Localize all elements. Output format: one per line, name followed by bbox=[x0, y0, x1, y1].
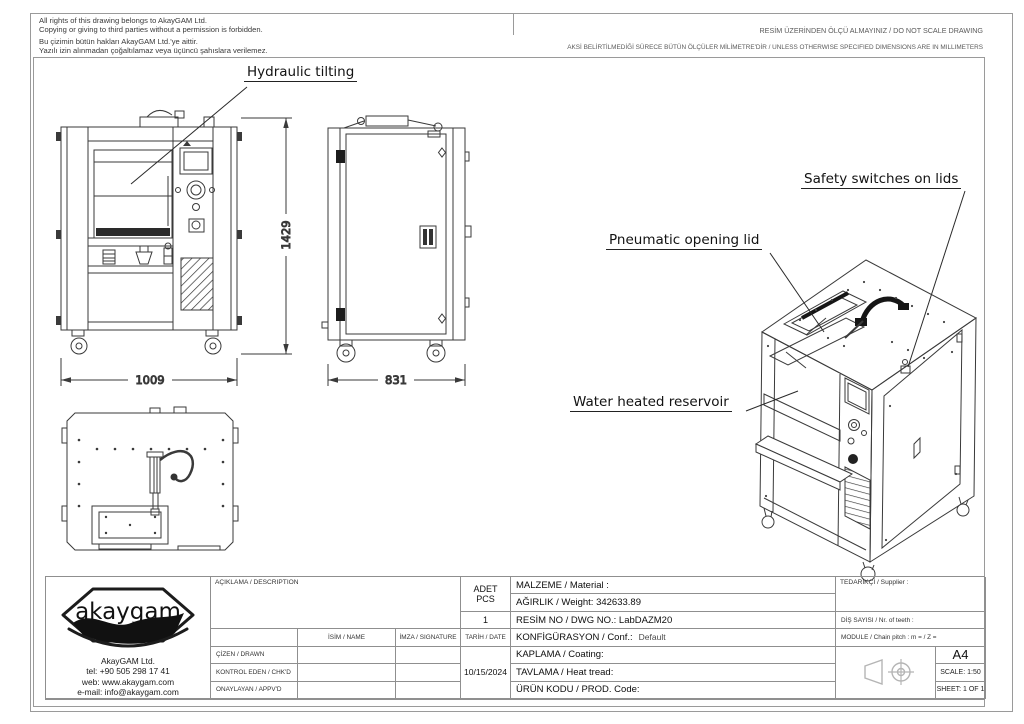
approved-label-cell: ONAYLAYAN / APPV'D bbox=[211, 682, 298, 699]
first-angle-projection-icon bbox=[855, 654, 917, 690]
side-view bbox=[322, 116, 471, 362]
dim-height-text: 1429 bbox=[279, 220, 293, 249]
logo-cell: akaygam AkayGAM Ltd. tel: +90 505 298 17… bbox=[46, 577, 211, 699]
projection-cell bbox=[836, 647, 936, 699]
module-cell: MODULE / Chain pitch : m = / Z = bbox=[836, 629, 986, 646]
heat-treat-cell: TAVLAMA / Heat tread: bbox=[511, 664, 836, 681]
dimension-width: 1009 bbox=[61, 358, 237, 387]
dim-width-text: 1009 bbox=[135, 373, 164, 387]
company-email: e-mail: info@akaygam.com bbox=[77, 687, 179, 697]
drawn-name-cell bbox=[298, 647, 396, 664]
signature-label-cell: İMZA / SIGNATURE bbox=[396, 629, 461, 646]
checked-signature-cell bbox=[396, 664, 461, 681]
teeth-cell: DİŞ SAYISI / Nr. of teeth : bbox=[836, 612, 986, 629]
date-value-cell: 10/15/2024 bbox=[461, 647, 511, 699]
description-cell: AÇIKLAMA / DESCRIPTION bbox=[211, 577, 461, 629]
weight-cell: AĞIRLIK / Weight: 342633.89 bbox=[511, 594, 836, 611]
qty-label-2: PCS bbox=[473, 594, 497, 604]
scale-cell: SCALE: 1:50 bbox=[936, 664, 986, 681]
description-label: AÇIKLAMA / DESCRIPTION bbox=[211, 577, 460, 586]
checked-name-cell bbox=[298, 664, 396, 681]
configuration-label: KONFİGÜRASYON / Conf.: bbox=[516, 632, 633, 643]
leader-lines bbox=[131, 87, 965, 411]
qty-value-cell: 1 bbox=[461, 612, 511, 629]
date-label-cell: TARİH / DATE bbox=[461, 629, 511, 646]
name-label-cell: İSİM / NAME bbox=[298, 629, 396, 646]
configuration-cell: KONFİGÜRASYON / Conf.: Default bbox=[511, 629, 836, 646]
company-contact: AkayGAM Ltd. tel: +90 505 298 17 41 web:… bbox=[77, 656, 179, 698]
dim-depth-text: 831 bbox=[385, 373, 407, 387]
dwg-no-cell: RESİM NO / DWG NO.: LabDAZM20 bbox=[511, 612, 836, 629]
company-logo: akaygam bbox=[53, 581, 203, 655]
qty-label-cell: ADET PCS bbox=[461, 577, 511, 612]
dimension-height: 1429 bbox=[241, 118, 293, 354]
material-cell: MALZEME / Material : bbox=[511, 577, 836, 594]
logo-text: akaygam bbox=[75, 599, 181, 625]
configuration-value: Default bbox=[639, 632, 666, 642]
coating-cell: KAPLAMA / Coating: bbox=[511, 647, 836, 664]
sheet-number-cell: SHEET: 1 OF 1 bbox=[936, 682, 986, 699]
company-name: AkayGAM Ltd. bbox=[77, 656, 179, 666]
drawing-sheet: All rights of this drawing belongs to Ak… bbox=[0, 0, 1024, 724]
company-tel: tel: +90 505 298 17 41 bbox=[77, 666, 179, 676]
top-view bbox=[62, 407, 238, 550]
dimension-depth: 831 bbox=[328, 364, 465, 387]
qty-label-1: ADET bbox=[473, 584, 497, 594]
supplier-cell: TEDARİKÇİ / Supplier : bbox=[836, 577, 986, 612]
approved-name-cell bbox=[298, 682, 396, 699]
supplier-label: TEDARİKÇİ / Supplier : bbox=[836, 577, 985, 586]
paper-size-cell: A4 bbox=[936, 647, 986, 664]
prod-code-cell: ÜRÜN KODU / PROD. Code: bbox=[511, 682, 836, 699]
front-view bbox=[56, 110, 242, 354]
company-web: web: www.akaygam.com bbox=[77, 677, 179, 687]
drawn-label-cell: ÇİZEN / DRAWN bbox=[211, 647, 298, 664]
checked-label-cell: KONTROL EDEN / CHK'D bbox=[211, 664, 298, 681]
isometric-view bbox=[756, 260, 976, 581]
approved-signature-cell bbox=[396, 682, 461, 699]
blank-cell bbox=[211, 629, 298, 646]
drawn-signature-cell bbox=[396, 647, 461, 664]
title-block: akaygam AkayGAM Ltd. tel: +90 505 298 17… bbox=[45, 576, 985, 700]
